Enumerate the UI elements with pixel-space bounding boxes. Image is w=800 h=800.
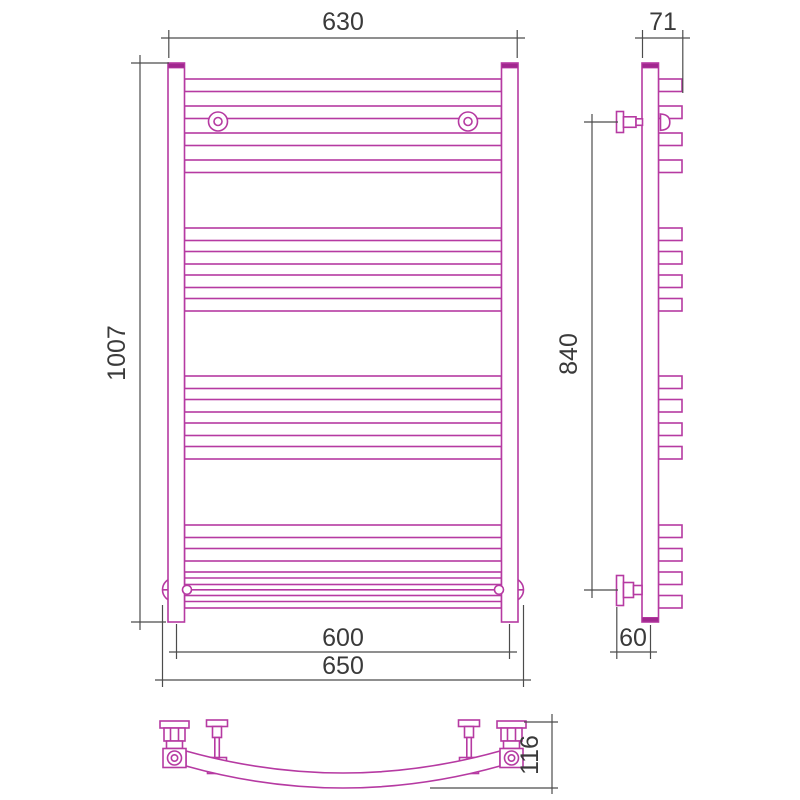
pin-lower-stem [467,738,472,758]
rail-bar [185,423,502,436]
rail-tab-side [659,228,683,241]
fitting-hex-nut [164,728,185,741]
rail-tab-side [659,423,683,436]
side-top-wall-bracket [617,112,643,133]
fitting-top-plate [497,721,526,728]
rail-bar [185,275,502,288]
rail-tab-side [659,376,683,389]
side-top-bracket-dome [661,114,670,130]
towel-rail-drawing: 630 1007 600 650 71 [0,0,800,800]
bracket-outer-circle [459,112,478,131]
rail-tab-side [659,133,683,146]
pin-lower-stem [215,738,220,758]
front-left-post-cap [168,63,185,68]
front-right-post-cap [502,63,519,68]
bottom-right-bracket-pin [459,720,480,758]
rail-tab-side [659,447,683,460]
dim-label-600: 600 [322,624,364,652]
rail-bar [185,447,502,460]
rail-tab-side [659,596,683,609]
bracket-outer-circle [209,112,228,131]
dim-label-840: 840 [555,333,583,375]
dim-front-height: 1007 [103,55,169,630]
bottom-left-corner-fitting [160,721,189,768]
front-right-post [502,63,519,622]
dim-label-630: 630 [322,8,364,36]
rail-bar [185,400,502,413]
bottom-left-bracket-pin [207,720,228,758]
pin-upper-stem [465,727,474,738]
front-left-bracket-eye [209,112,228,131]
rail-tab-side [659,252,683,265]
dimension-annotations: 630 1007 600 650 71 [103,8,690,794]
dim-label-116: 116 [516,735,544,775]
technical-drawing-page: 630 1007 600 650 71 [0,0,800,800]
rail-bar [185,549,502,562]
rail-tab-side [659,525,683,538]
side-tabs-group [659,79,683,608]
dim-label-60: 60 [619,624,647,652]
fitting-body [167,741,183,749]
rail-tab-side [659,79,683,92]
rail-bar [185,160,502,173]
rail-tab-side [659,400,683,413]
front-rails-group [185,79,502,608]
bracket-stem [624,583,634,598]
side-post [642,63,659,622]
side-bottom-wall-bracket [617,576,643,606]
rail-tab-side [659,549,683,562]
rail-bar [185,228,502,241]
bracket-stem [624,117,637,128]
rail-bar [185,525,502,538]
rail-tab-side [659,275,683,288]
front-left-post [168,63,185,622]
rail-tab-side [659,572,683,585]
rail-tab-side [659,299,683,312]
dim-label-1007: 1007 [103,325,131,381]
rail-bar [185,79,502,92]
collector-left-union-circle [183,585,192,594]
rail-bar [185,299,502,312]
bottom-view [160,720,526,788]
fitting-top-plate [160,721,189,728]
rail-bar [185,376,502,389]
rail-tab-side [659,160,683,173]
rail-bar [185,252,502,265]
pin-cap [207,720,228,727]
pin-cap [459,720,480,727]
front-view [163,63,524,622]
front-right-bracket-eye [459,112,478,131]
rail-bar [185,133,502,146]
bracket-collar [634,586,643,595]
side-view [617,63,683,622]
curved-rail-band [186,751,500,788]
dim-front-top-width: 630 [161,8,525,58]
side-post-bottom-cap [642,617,659,622]
bracket-collar [636,119,643,126]
dim-side-bracket-span: 840 [555,114,618,598]
rail-bar [185,106,502,119]
pin-upper-stem [213,727,222,738]
dim-label-71: 71 [649,8,677,36]
dim-label-650: 650 [322,652,364,680]
side-post-top-cap [642,63,659,68]
collector-right-union-circle [495,585,504,594]
